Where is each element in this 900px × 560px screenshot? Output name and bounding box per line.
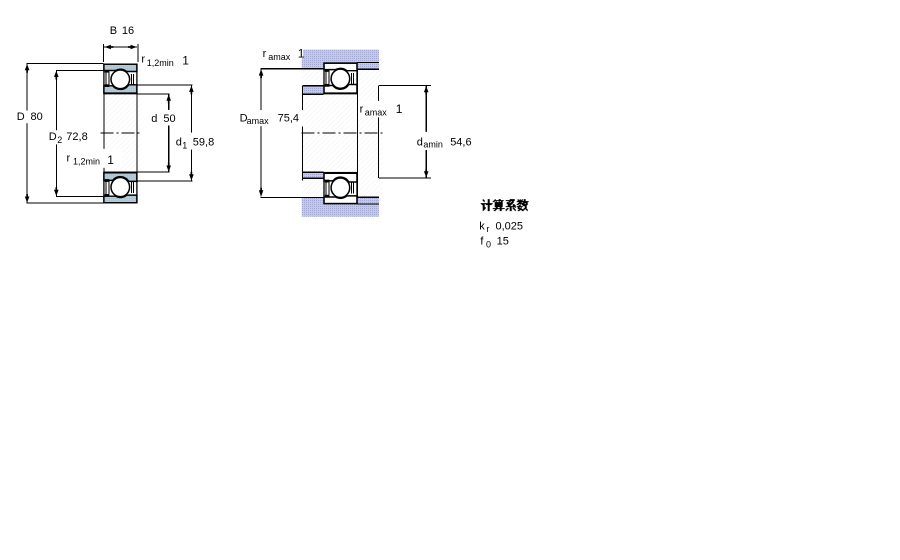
svg-text:r: r <box>360 104 364 116</box>
svg-text:1: 1 <box>182 140 187 150</box>
svg-text:amin: amin <box>423 140 443 150</box>
svg-text:B: B <box>110 25 117 37</box>
svg-text:r: r <box>263 48 267 60</box>
svg-text:1,2min: 1,2min <box>147 58 174 68</box>
svg-text:54,6: 54,6 <box>450 136 471 148</box>
svg-text:59,8: 59,8 <box>193 137 214 149</box>
svg-text:r: r <box>67 153 71 165</box>
svg-text:0: 0 <box>486 239 491 249</box>
svg-text:80: 80 <box>31 111 43 123</box>
svg-text:f: f <box>480 236 484 248</box>
svg-text:1: 1 <box>107 153 114 167</box>
svg-text:16: 16 <box>122 25 134 37</box>
svg-text:r: r <box>486 224 489 234</box>
svg-text:D: D <box>17 111 25 123</box>
svg-text:1: 1 <box>396 102 403 116</box>
svg-text:72,8: 72,8 <box>66 131 87 143</box>
svg-text:amax: amax <box>365 107 388 117</box>
svg-text:d: d <box>417 136 423 148</box>
svg-text:1: 1 <box>182 54 189 68</box>
svg-text:d: d <box>176 137 182 149</box>
svg-text:D: D <box>49 131 57 143</box>
svg-text:d: d <box>151 113 157 125</box>
svg-text:k: k <box>479 220 485 232</box>
svg-text:amax: amax <box>268 52 291 62</box>
svg-text:1: 1 <box>298 46 305 60</box>
svg-text:75,4: 75,4 <box>278 113 299 125</box>
svg-text:r: r <box>141 54 145 66</box>
svg-text:15: 15 <box>497 236 509 248</box>
svg-text:0,025: 0,025 <box>496 220 524 232</box>
svg-text:2: 2 <box>57 135 62 145</box>
svg-text:1,2min: 1,2min <box>73 157 100 167</box>
svg-text:50: 50 <box>163 113 175 125</box>
svg-text:amax: amax <box>247 116 270 126</box>
